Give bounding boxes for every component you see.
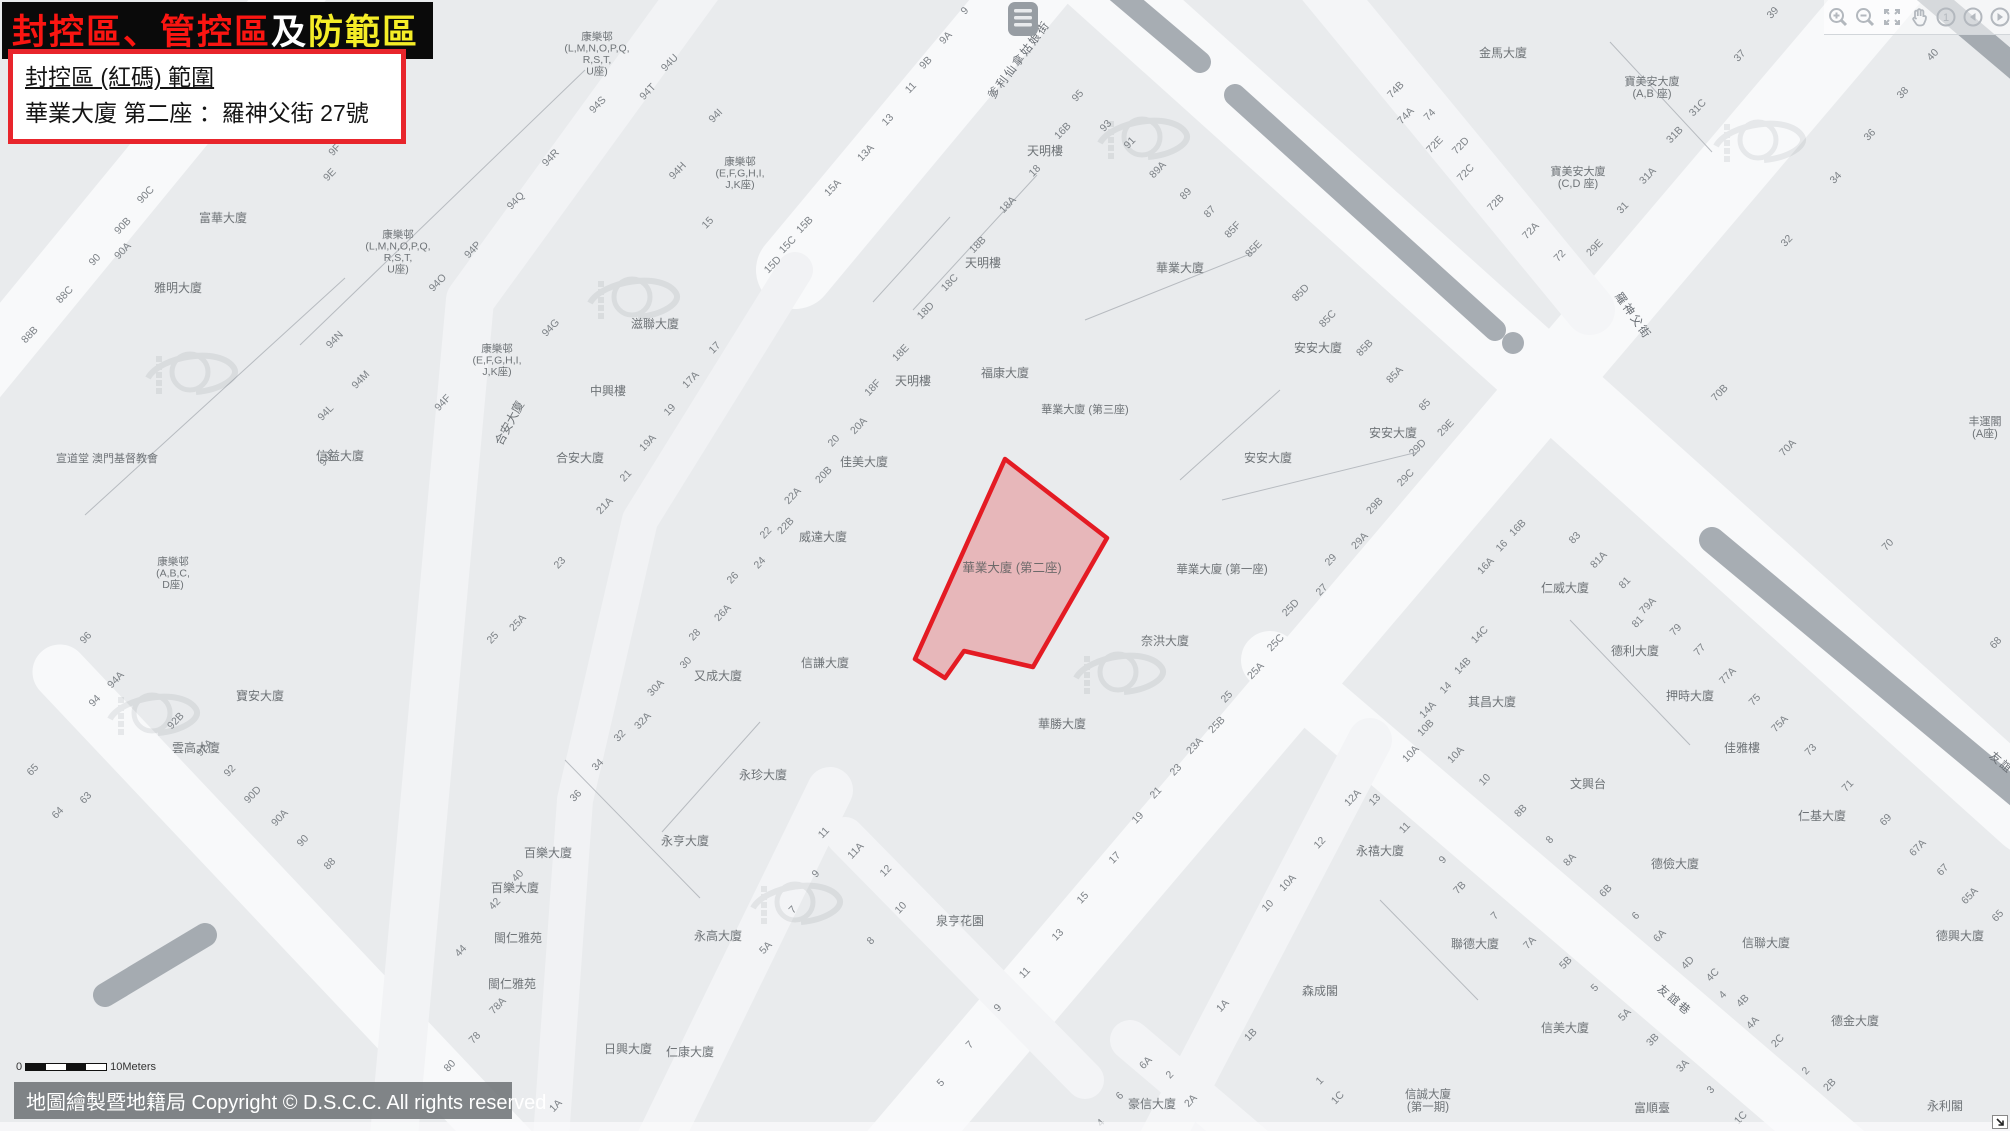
building-label: 豪信大廈 — [1128, 1096, 1176, 1111]
building-label: 天明樓 — [1027, 143, 1063, 158]
scale-bar-segments — [25, 1063, 107, 1071]
map-toolbar: 1 — [1824, 0, 2010, 35]
building-label: 滋聯大廈 — [631, 316, 679, 331]
building-label: 信誠大廈(第一期) — [1405, 1087, 1451, 1114]
banner-red-text: 封控區、管控區 — [12, 13, 271, 52]
building-label: 百樂大廈 — [524, 845, 572, 860]
building-label: 泉亨花園 — [936, 913, 984, 928]
resize-arrow-icon — [1995, 1117, 2005, 1127]
building-label: 中興樓 — [590, 383, 626, 398]
building-label: 福康大廈 — [981, 365, 1029, 380]
zoom-out-button[interactable] — [1853, 5, 1877, 29]
banner-yellow-text: 防範區 — [308, 13, 419, 52]
previous-extent-button[interactable] — [1961, 5, 1985, 29]
pan-button[interactable] — [1907, 5, 1931, 29]
building-label: 華業大廈 — [1156, 260, 1204, 275]
building-label: 寶安大廈 — [236, 688, 284, 703]
initial-extent-icon: 1 — [1935, 6, 1957, 28]
building-label: 閩仁雅苑 — [494, 930, 542, 945]
red-zone-scope-title: 封控區 (紅碼) 範圍 — [25, 60, 393, 96]
building-label: 安安大廈 — [1369, 425, 1417, 440]
red-zone-label: 華業大廈 (第二座) — [962, 560, 1061, 575]
next-extent-button[interactable] — [1988, 5, 2010, 29]
building-label: 永亨大廈 — [661, 833, 709, 848]
building-label: 信益大廈 — [316, 448, 364, 463]
building-label: 日興大廈 — [604, 1041, 652, 1056]
building-label: 其昌大廈 — [1468, 694, 1516, 709]
building-label: 仁康大廈 — [666, 1044, 714, 1059]
building-label: 信美大廈 — [1541, 1020, 1589, 1035]
building-label: 佳雅樓 — [1724, 740, 1760, 755]
attribution-bar: 地圖繪製暨地籍局 Copyright © D.S.C.C. All rights… — [14, 1082, 512, 1119]
building-label: 威達大廈 — [799, 529, 847, 544]
building-label: 雲高大廈 — [172, 740, 220, 755]
building-label: 寶美安大廈(A,B 座) — [1625, 74, 1680, 100]
scale-distance-label: 10Meters — [110, 1061, 156, 1073]
pan-hand-icon — [1908, 6, 1930, 28]
building-label: 仁基大廈 — [1798, 808, 1846, 823]
scale-bar: 0 10Meters — [16, 1061, 156, 1073]
building-label: 永利閣 — [1927, 1099, 1963, 1113]
map-viewer: 華業大廈 (第二座)90C90B90A9088C88B9F9E94U94T94S… — [0, 0, 2010, 1131]
building-label: 富華大廈 — [199, 210, 247, 225]
initial-extent-button[interactable]: 1 — [1934, 5, 1958, 29]
building-label: 丰運閣(A座) — [1969, 415, 2002, 440]
svg-text:1: 1 — [1943, 12, 1949, 24]
building-label: 安安大廈 — [1244, 450, 1292, 465]
building-label: 金馬大廈 — [1479, 45, 1527, 60]
building-label: 永高大廈 — [694, 928, 742, 943]
previous-extent-icon — [1962, 6, 1984, 28]
red-zone-info-box: 封控區 (紅碼) 範圍 華業大廈 第二座 ：羅神父街 27號 — [8, 49, 406, 144]
zoom-in-button[interactable] — [1826, 5, 1850, 29]
building-label: 宣道堂 澳門基督教會 — [56, 451, 158, 465]
banner-white-text: 及 — [271, 13, 308, 52]
building-label: 信聯大廈 — [1742, 935, 1790, 950]
page-bottom-edge — [0, 1122, 2010, 1131]
street-sign-marker-icon — [1008, 2, 1038, 36]
building-label: 安安大廈 — [1294, 340, 1342, 355]
building-label: 押時大廈 — [1666, 688, 1714, 703]
building-label: 天明樓 — [965, 255, 1001, 270]
building-label: 德金大廈 — [1831, 1013, 1879, 1028]
zoom-in-icon — [1827, 6, 1849, 28]
building-label: 華業大廈 (第一座) — [1176, 562, 1268, 576]
attribution-text: 地圖繪製暨地籍局 Copyright © D.S.C.C. All rights… — [26, 1086, 546, 1115]
building-label: 華業大廈 (第三座) — [1041, 402, 1128, 416]
building-label: 信謙大廈 — [801, 655, 849, 670]
building-label: 富順臺 — [1634, 1100, 1670, 1115]
scale-zero-label: 0 — [16, 1061, 22, 1073]
full-extent-button[interactable] — [1880, 5, 1904, 29]
corner-resize-button[interactable] — [1992, 1115, 2008, 1129]
building-label: 德儉大廈 — [1651, 856, 1699, 871]
building-label: 華勝大廈 — [1038, 716, 1086, 731]
next-extent-icon — [1989, 6, 2010, 28]
red-zone-address: 華業大廈 第二座 ：羅神父街 27號 — [25, 96, 393, 132]
building-label: 雅明大廈 — [154, 280, 202, 295]
building-label: 仁威大廈 — [1541, 580, 1589, 595]
building-label: 森成閣 — [1302, 983, 1338, 998]
building-label: 文興台 — [1570, 776, 1606, 791]
building-label: 天明樓 — [895, 373, 931, 388]
building-label: 又成大廈 — [694, 668, 742, 683]
building-label: 合安大廈 — [556, 450, 604, 465]
building-label: 百樂大廈 — [491, 880, 539, 895]
full-extent-icon — [1881, 6, 1903, 28]
building-label: 奈洪大廈 — [1141, 633, 1189, 648]
building-label: 寶美安大廈(C,D 座) — [1551, 164, 1606, 190]
building-label: 德利大廈 — [1611, 643, 1659, 658]
building-label: 永珍大廈 — [739, 767, 787, 782]
building-label: 永禧大廈 — [1356, 843, 1404, 858]
zoom-out-icon — [1854, 6, 1876, 28]
building-label: 佳美大廈 — [840, 454, 888, 469]
building-label: 閩仁雅苑 — [488, 976, 536, 991]
building-label: 聯德大廈 — [1451, 936, 1499, 951]
building-label: 德興大廈 — [1936, 928, 1984, 943]
map-canvas[interactable]: 華業大廈 (第二座)90C90B90A9088C88B9F9E94U94T94S… — [0, 0, 2010, 1131]
